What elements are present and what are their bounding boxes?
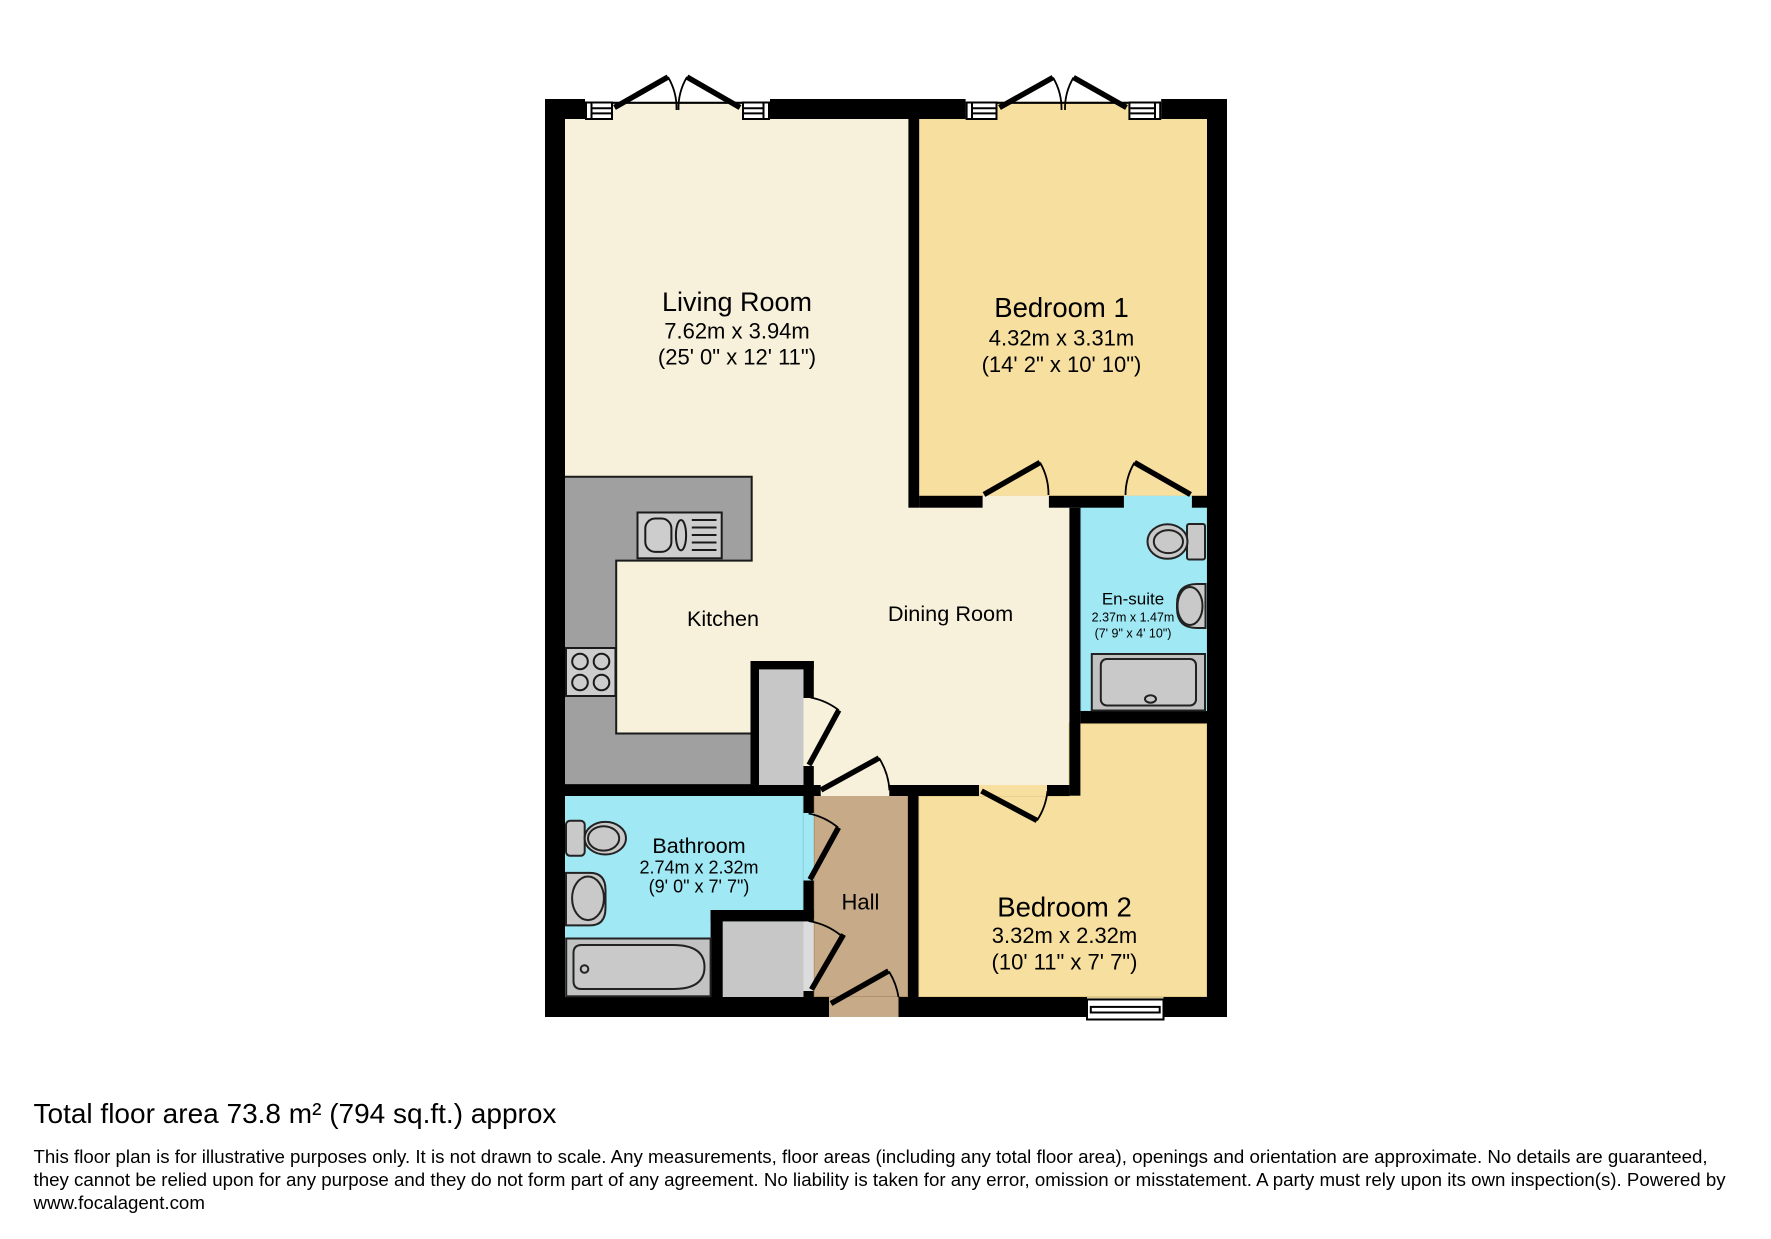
svg-text:Bedroom 2: Bedroom 2 <box>997 892 1132 923</box>
svg-text:Hall: Hall <box>842 890 880 915</box>
svg-text:www.focalagent.com: www.focalagent.com <box>33 1192 205 1213</box>
svg-text:Bathroom: Bathroom <box>652 834 745 858</box>
svg-text:Bedroom 1: Bedroom 1 <box>994 292 1129 323</box>
svg-text:they cannot be relied upon for: they cannot be relied upon for any purpo… <box>34 1169 1727 1190</box>
svg-text:2.74m x 2.32m: 2.74m x 2.32m <box>639 858 758 878</box>
svg-text:(7' 9" x 4' 10"): (7' 9" x 4' 10") <box>1095 627 1172 641</box>
svg-text:Kitchen: Kitchen <box>687 606 759 631</box>
svg-text:Total floor area 73.8 m² (794: Total floor area 73.8 m² (794 sq.ft.) ap… <box>34 1098 557 1129</box>
svg-text:Dining Room: Dining Room <box>888 601 1013 626</box>
svg-text:This floor plan is for illustr: This floor plan is for illustrative purp… <box>34 1146 1708 1167</box>
svg-text:4.32m x 3.31m: 4.32m x 3.31m <box>989 326 1135 351</box>
svg-text:(25' 0" x 12' 11"): (25' 0" x 12' 11") <box>658 345 816 370</box>
svg-text:(14' 2" x 10' 10"): (14' 2" x 10' 10") <box>982 352 1142 377</box>
svg-text:2.37m x 1.47m: 2.37m x 1.47m <box>1092 611 1175 625</box>
svg-text:3.32m x 2.32m: 3.32m x 2.32m <box>992 923 1138 948</box>
svg-text:(9' 0" x 7' 7"): (9' 0" x 7' 7") <box>649 877 750 897</box>
svg-text:En-suite: En-suite <box>1102 590 1164 609</box>
svg-text:Living Room: Living Room <box>662 287 812 317</box>
svg-text:7.62m x 3.94m: 7.62m x 3.94m <box>664 319 810 344</box>
svg-text:(10' 11" x 7' 7"): (10' 11" x 7' 7") <box>992 950 1138 975</box>
